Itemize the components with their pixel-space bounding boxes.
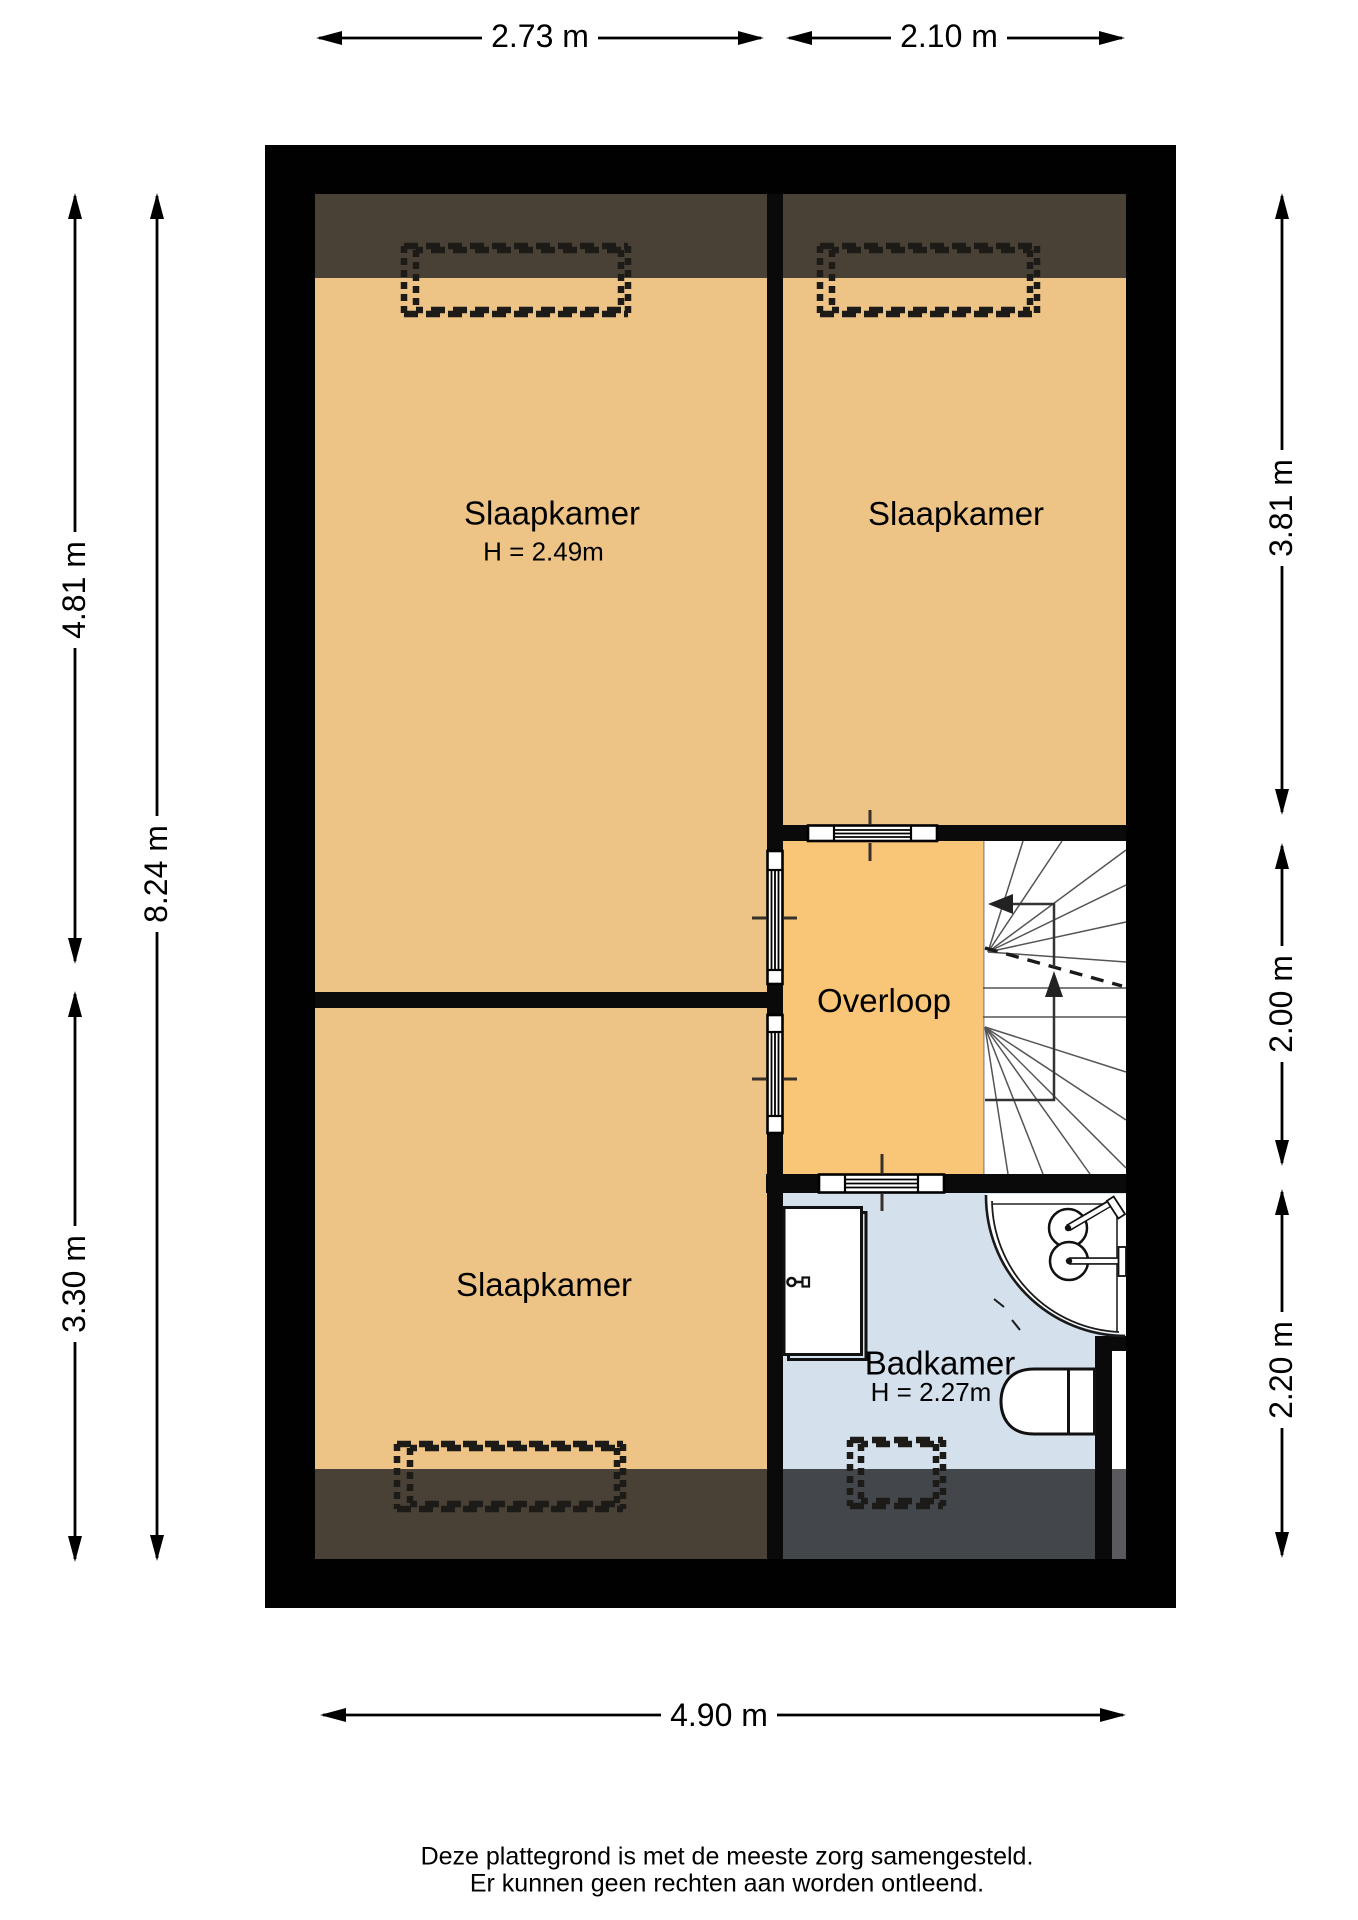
svg-text:3.81 m: 3.81 m [1263, 459, 1299, 557]
svg-text:4.90 m: 4.90 m [670, 1697, 768, 1733]
svg-text:2.20 m: 2.20 m [1263, 1321, 1299, 1419]
svg-text:Er kunnen geen rechten aan wor: Er kunnen geen rechten aan worden ontlee… [470, 1870, 984, 1898]
svg-text:H = 2.27m: H = 2.27m [871, 1377, 992, 1407]
svg-text:Slaapkamer: Slaapkamer [464, 495, 640, 532]
svg-text:2.00 m: 2.00 m [1263, 955, 1299, 1053]
svg-text:Slaapkamer: Slaapkamer [456, 1266, 632, 1303]
svg-text:2.10 m: 2.10 m [900, 18, 998, 54]
svg-text:3.30 m: 3.30 m [56, 1235, 92, 1333]
svg-text:H = 2.49m: H = 2.49m [483, 537, 604, 567]
svg-text:8.24 m: 8.24 m [138, 825, 174, 923]
svg-text:Slaapkamer: Slaapkamer [868, 495, 1044, 532]
svg-text:2.73 m: 2.73 m [491, 18, 589, 54]
svg-text:Badkamer: Badkamer [865, 1345, 1015, 1382]
svg-text:Overloop: Overloop [817, 982, 951, 1019]
svg-text:Deze plattegrond is met de mee: Deze plattegrond is met de meeste zorg s… [421, 1843, 1034, 1871]
svg-text:4.81 m: 4.81 m [56, 541, 92, 639]
